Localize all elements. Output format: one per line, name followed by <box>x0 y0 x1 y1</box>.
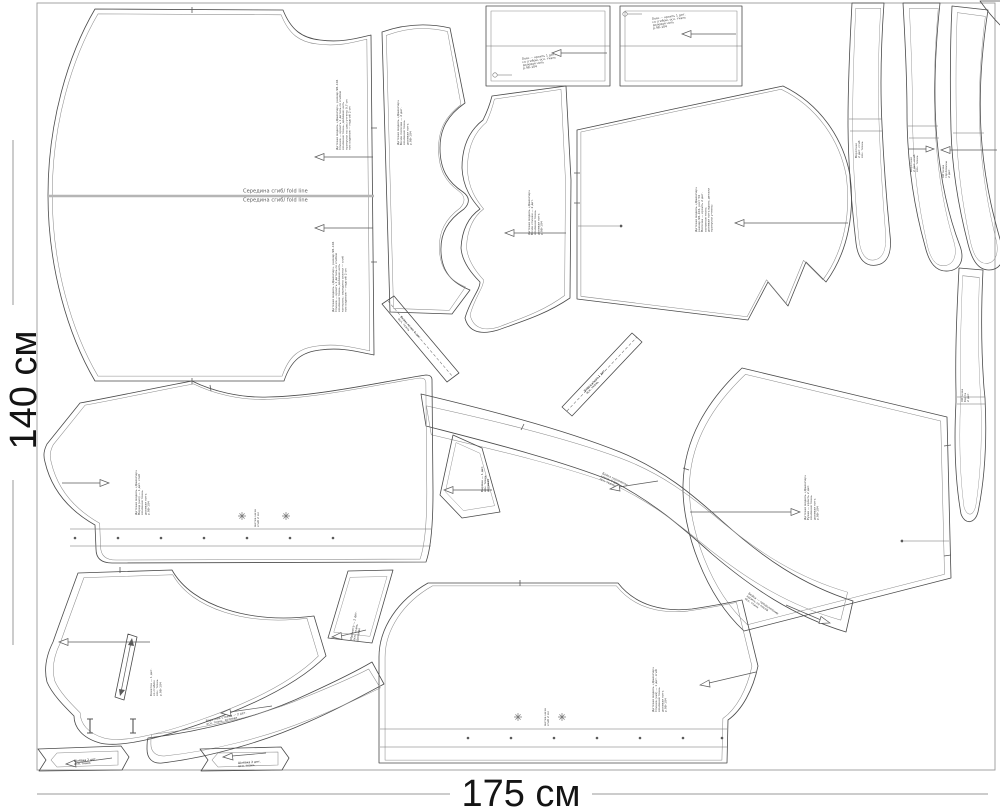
piece-neck-binding-band-seamline <box>426 406 847 620</box>
piece-annotation-belt-loop-1: Шлёвка 2 дет.осн. ткань <box>74 757 97 766</box>
piece-bias-strip-1 <box>382 296 459 382</box>
piece-cuff-seamline <box>334 576 387 636</box>
piece-annotation-waistband-1: Пояс — кроить 1 дет.со сгибом, осн. ткан… <box>522 52 558 70</box>
cross-mark <box>558 713 566 721</box>
grain-arrow-back-1 <box>315 154 373 161</box>
grain-arrow-waistband-2 <box>682 31 736 38</box>
piece-front-side-seamline <box>467 89 566 328</box>
grain-arrow-collar-3 <box>941 147 997 154</box>
piece-annotation-back-lower-note: метка низасгиб 2 см <box>543 708 550 726</box>
button-mark <box>553 737 556 740</box>
piece-corner-band <box>980 1 1000 26</box>
width-dimension: 175 см <box>37 773 988 810</box>
button-mark <box>682 737 685 740</box>
piece-annotation-front-side: Детская модель «Джемпер»Бочок спинки — 2… <box>527 190 543 235</box>
button-mark <box>246 537 249 540</box>
double-arrow-yoke-strip <box>115 634 137 700</box>
piece-sleeve <box>683 368 951 631</box>
piece-front-bodice <box>577 86 852 320</box>
piece-side-panel <box>382 25 470 314</box>
piece-side-panel-seamline <box>386 29 465 311</box>
piece-front-lower-seamline <box>50 378 427 560</box>
piece-yoke-seamline <box>53 575 318 740</box>
fold-line-label-below: Середина сгиб/ fold line <box>243 198 308 204</box>
piece-collar-stand-seamline <box>151 669 380 756</box>
notch-ticks <box>120 7 951 586</box>
grain-arrow-front-bodice <box>735 220 848 227</box>
piece-annotation-collar-band-1: Воротник2 дет. сгибосн. ткань <box>854 140 864 158</box>
buttonhole-bar-1 <box>87 719 93 733</box>
button-mark <box>117 537 120 540</box>
button-mark <box>74 537 77 540</box>
piece-annotation-yoke: Кокетка — 1 дет.со сгибомосн. тканьр.98–… <box>149 669 162 696</box>
piece-annotation-pocket: Карман — 1 дет.осн. тканьдолевая <box>480 466 490 492</box>
cross-mark <box>514 713 522 721</box>
small-symbols <box>87 12 949 733</box>
piece-front-lower <box>44 375 433 563</box>
piece-yoke <box>46 570 326 744</box>
fold-line-label-above: Середина сгиб/ fold line <box>243 189 308 195</box>
piece-neck-binding-band <box>421 394 853 632</box>
piece-annotation-front-lower: Детская модель «Джемпер»Перед (низ) — 1 … <box>134 470 150 515</box>
notch-dot-line-sleeve <box>901 540 949 543</box>
piece-collar-band-2 <box>903 3 962 271</box>
piece-annotation-collar-band-2: Воротник2 дет. сгибосн. ткань <box>909 154 919 172</box>
piece-waistband-1 <box>486 6 610 86</box>
piece-pocket <box>440 435 500 518</box>
cross-mark <box>238 512 246 520</box>
piece-annotation-sleeve: Детская модель «Джемпер»Рукав — кроить 2… <box>803 475 819 520</box>
piece-collar-stand <box>147 662 384 763</box>
piece-back-lower <box>379 583 758 763</box>
piece-collar-band-1-seamline <box>853 8 886 260</box>
buttonhole-bar-2 <box>130 719 136 733</box>
grain-arrow-back-2 <box>315 225 373 232</box>
button-mark <box>203 537 206 540</box>
button-mark <box>510 737 513 740</box>
piece-annotation-back-upper: Детская модель «Джемпер», размер 98–104С… <box>335 79 351 150</box>
piece-annotation-back-lower-piece: Детская модель «Джемпер»Спинка (низ) — 1… <box>651 667 667 712</box>
grain-circle-symbol-1 <box>493 73 512 77</box>
front-lower-hem-band <box>70 529 431 546</box>
piece-annotation-neck-binding-end: Бейка — продолжениекроить по косойосн. т… <box>744 592 780 621</box>
piece-annotation-back-lower: Детская модель «Джемпер», размер 98–104С… <box>331 241 347 312</box>
grain-arrow-front-lower <box>62 480 109 487</box>
cross-mark <box>282 512 290 520</box>
notch-dot-line-front <box>578 225 622 228</box>
height-dimension: 140 см <box>3 140 45 645</box>
piece-annotation-collar-band-3: Обтачкагорловины2 дет. <box>941 160 951 178</box>
piece-annotation-cuff: Манжета — 2 дет.осн. тканьдолевая <box>349 611 364 641</box>
piece-front-bodice-seamline <box>581 89 848 316</box>
piece-annotation-facing-strip: Обтачкаборта2 дет. <box>960 389 970 402</box>
grain-arrow-binding-end <box>786 605 830 624</box>
piece-annotation-waistband-2: Пояс — кроить 1 дет.со сгибом, осн. ткан… <box>652 12 688 30</box>
button-mark <box>160 537 163 540</box>
center-fold-line: Середина сгиб/ fold line Середина сгиб/ … <box>48 189 374 204</box>
piece-annotation-belt-loop-2: Шлёвка 2 дет.осн. ткань <box>238 759 261 768</box>
piece-back-lower-seamline <box>385 586 752 760</box>
piece-annotation-front-lower-note: метка низасгиб 2 см <box>253 509 260 527</box>
piece-annotation-front-bodice: Детская модель «Джемпер»размер 98–104, р… <box>694 187 714 232</box>
grain-circle-symbol-2 <box>623 12 642 16</box>
pattern-marker-layout: 140 см 175 см <box>0 0 1000 810</box>
button-mark <box>639 737 642 740</box>
button-mark <box>721 737 724 740</box>
marker-canvas: 140 см 175 см <box>0 0 1000 810</box>
button-mark <box>332 537 335 540</box>
height-dim-label: 140 см <box>3 330 45 449</box>
piece-annotation-side-panel: Детская модель «Джемпер»Бочок полочки — … <box>396 100 412 145</box>
grain-arrow-waistband-1 <box>552 50 607 57</box>
button-mark <box>289 537 292 540</box>
width-dim-label: 175 см <box>461 773 580 810</box>
piece-collar-band-2-seamline <box>909 8 955 265</box>
piece-pocket-seamline <box>445 443 494 511</box>
piece-annotation-bias-strip-1: Бейка косая 1 дет.осн. ткань <box>397 315 422 342</box>
piece-collar-band-3 <box>950 6 1000 270</box>
pattern-pieces <box>38 1 1000 771</box>
button-mark <box>596 737 599 740</box>
piece-collar-band-3-seamline <box>956 13 997 264</box>
grain-arrow-collar-2 <box>908 146 934 152</box>
button-mark <box>467 737 470 740</box>
grain-arrow-back-lower <box>700 672 756 687</box>
